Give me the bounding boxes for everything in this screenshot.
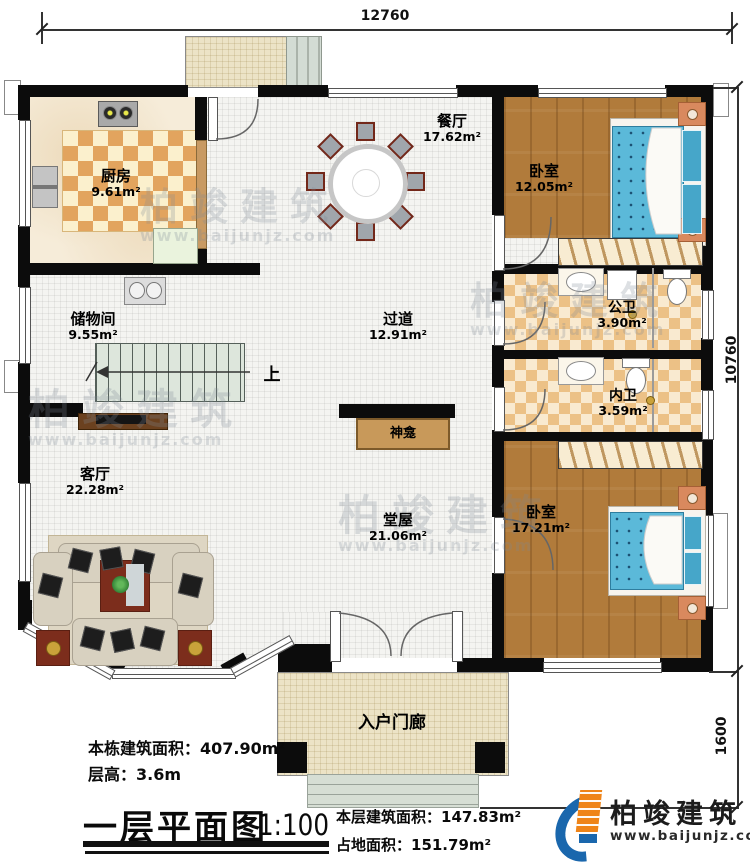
staircase	[95, 343, 245, 402]
logo-url: www.baijunjz.com	[610, 828, 750, 844]
window	[19, 287, 31, 364]
wardrobe	[558, 238, 703, 266]
dimension-porch-label: 1600	[714, 712, 730, 760]
wall-hall-bottom	[457, 658, 505, 672]
wall	[18, 225, 30, 287]
window	[328, 88, 458, 98]
nightstand	[678, 102, 706, 126]
wall-bedroom-bottom	[504, 658, 544, 672]
wall-bath	[504, 432, 713, 441]
room-label-bedroom-bottom: 卧室 17.21m²	[512, 504, 570, 536]
bed-pillow	[682, 130, 702, 182]
stairs-up-label: 上	[264, 366, 281, 386]
shrine-label: 神龛	[390, 426, 416, 441]
window	[702, 390, 714, 440]
door-leaf-entry-left	[330, 611, 341, 662]
door-leaf-bedroom-top	[494, 215, 505, 271]
kitchen-sink-icon	[32, 166, 58, 208]
end-table	[178, 630, 212, 666]
room-label-private-bath: 内卫 3.59m²	[598, 388, 647, 418]
wardrobe	[558, 441, 703, 469]
dimension-height-label: 10760	[724, 328, 740, 392]
dimension-line-top	[42, 29, 733, 31]
room-label-entry-porch: 入户门廊	[358, 714, 426, 734]
porch-pillar	[475, 742, 505, 773]
wall-corridor	[492, 97, 504, 215]
wall-kitchen-bottom	[18, 263, 260, 275]
logo-text: 柏竣建筑	[610, 792, 742, 831]
window	[538, 88, 667, 98]
dimension-width-label: 12760	[350, 8, 420, 24]
dining-table-center	[352, 169, 380, 197]
dimension-line-right	[737, 88, 739, 808]
room-label-kitchen: 厨房 9.61m²	[91, 168, 140, 200]
wall-bedroom-bottom	[660, 658, 713, 672]
room-label-public-bath: 公卫 3.90m²	[597, 300, 646, 330]
wall	[665, 85, 713, 97]
wall-corridor	[492, 430, 504, 517]
dining-chair	[356, 222, 375, 241]
bed-mattress	[612, 126, 684, 238]
wall-kitchen	[195, 97, 207, 140]
floor-plan-sheet: 12760 10760 1600	[0, 0, 750, 866]
fridge-icon	[153, 228, 198, 264]
end-table	[36, 630, 70, 666]
burner-icon	[103, 106, 117, 120]
floor-height-text: 层高：3.6m	[88, 761, 181, 785]
room-label-hallway: 过道 12.91m²	[369, 311, 427, 343]
plant-icon	[112, 576, 129, 593]
washing-machine-icon	[607, 270, 637, 300]
door-leaf-bedroom-bottom	[494, 517, 505, 574]
room-label-dining: 餐厅 17.62m²	[423, 113, 481, 145]
nightstand	[678, 596, 706, 620]
entry-steps	[307, 774, 479, 808]
wall-corridor	[492, 345, 504, 387]
shrine-console: 神龛	[356, 418, 450, 450]
door-leaf-balcony	[208, 97, 218, 141]
logo-base-icon	[579, 834, 597, 843]
wall	[456, 85, 538, 97]
wall	[258, 85, 328, 97]
wall	[18, 97, 30, 120]
wall-bath	[504, 350, 713, 359]
wall	[701, 338, 713, 390]
sofa-cushion	[99, 546, 123, 570]
bed-pillow	[684, 516, 702, 550]
toilet-bowl-icon	[667, 278, 687, 305]
nightstand	[678, 486, 706, 510]
bed-pillow	[682, 184, 702, 234]
room-label-hall: 堂屋 21.06m²	[369, 512, 427, 544]
scale-text: 1:100	[258, 808, 329, 842]
bed-mattress	[610, 512, 684, 590]
balcony-floor	[185, 36, 288, 88]
window	[543, 662, 662, 673]
window-bay	[112, 668, 236, 679]
sink-icon	[566, 272, 596, 292]
footprint-area-text: 占地面积：151.79m²	[336, 834, 491, 855]
room-label-storage: 储物间 9.55m²	[68, 311, 117, 343]
basin-icon	[146, 282, 162, 299]
dining-chair	[406, 172, 425, 191]
dining-chair	[306, 172, 325, 191]
sofa-cushion	[110, 628, 135, 653]
dining-chair	[356, 122, 375, 141]
door-leaf-public-bath	[494, 300, 505, 346]
door-leaf-private-bath	[494, 387, 505, 432]
wall-bump-out	[713, 513, 728, 609]
window	[702, 290, 714, 340]
sink-icon	[566, 361, 596, 381]
tv-icon	[96, 415, 146, 424]
brand-logo: 柏竣建筑 www.baijunjz.com	[552, 786, 748, 862]
bed-pillow	[684, 552, 702, 585]
wall	[18, 362, 30, 483]
wall	[18, 85, 188, 97]
room-label-living: 客厅 22.28m²	[66, 466, 124, 498]
burner-icon	[119, 106, 133, 120]
shower-divider	[652, 268, 654, 348]
floor-area-text: 本层建筑面积：147.83m²	[336, 806, 521, 827]
window	[19, 483, 31, 582]
balcony-unit	[286, 36, 322, 88]
window	[19, 120, 31, 227]
wall-corridor	[492, 573, 504, 658]
floor-wardrobe-gap	[504, 238, 558, 264]
wall-living	[18, 403, 83, 417]
building-area-text: 本栋建筑面积：407.90m²	[88, 735, 285, 759]
wall-corridor	[492, 271, 504, 302]
door-leaf-entry-right	[452, 611, 463, 662]
wall-shrine-stub	[339, 404, 455, 418]
title-underline-thin	[85, 851, 329, 854]
basin-icon	[129, 282, 145, 299]
logo-building-icon	[576, 790, 602, 832]
room-label-bedroom-top: 卧室 12.05m²	[515, 163, 573, 195]
